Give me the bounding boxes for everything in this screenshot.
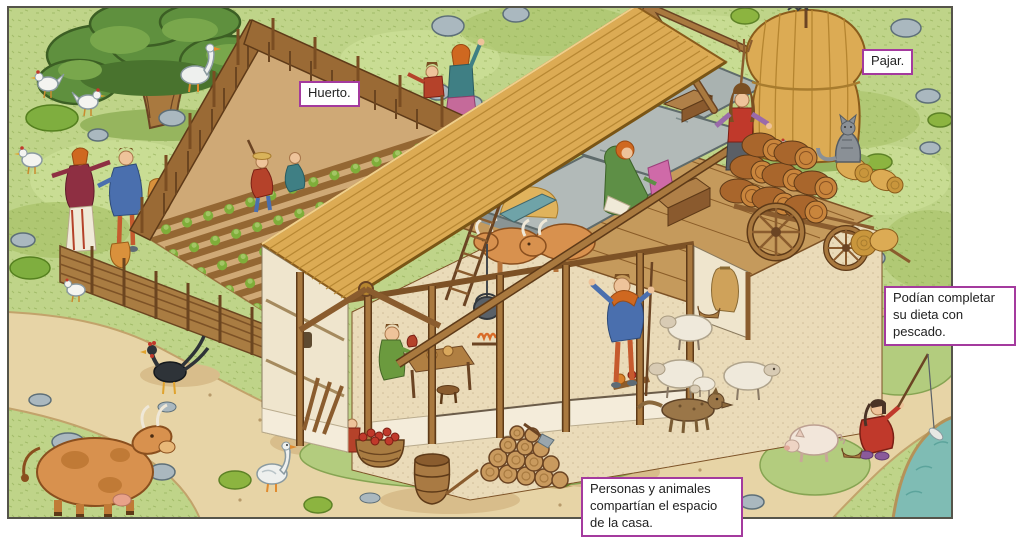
farm-illustration: [0, 0, 1018, 549]
cart-wheel-front: [750, 206, 802, 258]
apple-basket: [356, 428, 404, 467]
label-pescado: Podían completar su dieta con pescado.: [884, 286, 1016, 346]
label-pajar: Pajar.: [862, 49, 913, 75]
screenshot-root: Huerto. Pajar. Podían completar su dieta…: [0, 0, 1018, 549]
label-casa: Personas y animales compartían el espaci…: [581, 477, 743, 537]
label-huerto: Huerto.: [299, 81, 360, 107]
